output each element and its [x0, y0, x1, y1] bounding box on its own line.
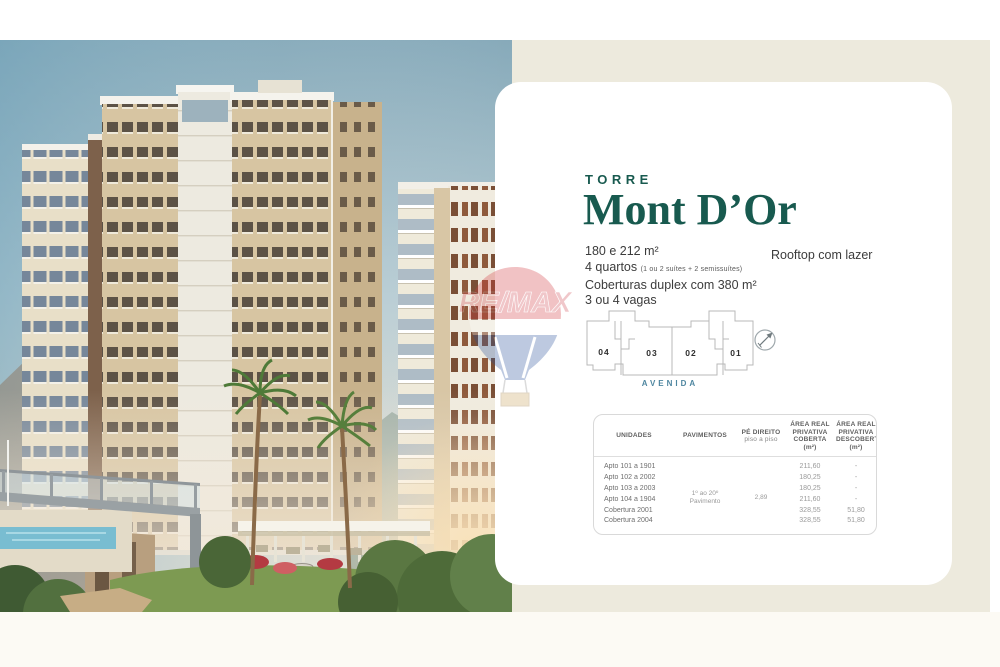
- rooftop-note: Rooftop com lazer: [771, 248, 872, 262]
- tower-title: Mont D’Or: [583, 186, 797, 234]
- building-rendering-illustration: [0, 40, 512, 612]
- col-area-coberta: ÁREA REAL PRIVATIVA COBERTA (m²): [786, 415, 834, 457]
- unit-label: 02: [685, 348, 696, 358]
- spec-area: 180 e 212 m²: [585, 244, 757, 260]
- unit-label: 04: [598, 347, 609, 357]
- compass-icon: [752, 327, 778, 353]
- table-header-row: UNIDADES PAVIMENTOS PÉ DIREITO piso a pi…: [594, 415, 877, 457]
- street-label: AVENIDA: [585, 379, 755, 388]
- info-card: TORRE Mont D’Or 180 e 212 m² 4 quartos (…: [495, 82, 952, 585]
- unit-label: 03: [646, 348, 657, 358]
- floorplan-diagram: 04 03 02 01: [585, 306, 755, 380]
- merged-pavimentos: 1º ao 20º Pavimento: [674, 457, 736, 534]
- bottom-band: [0, 612, 1000, 667]
- spec-rooms-note: (1 ou 2 suítes + 2 semissuítes): [641, 266, 743, 273]
- unit-label: 01: [730, 348, 741, 358]
- col-pe-direito: PÉ DIREITO piso a piso: [736, 415, 786, 457]
- units-table: UNIDADES PAVIMENTOS PÉ DIREITO piso a pi…: [593, 414, 877, 535]
- merged-pe-direito: 2,89: [736, 457, 786, 534]
- col-unidades: UNIDADES: [594, 415, 674, 457]
- slide: TORRE Mont D’Or 180 e 212 m² 4 quartos (…: [0, 0, 1000, 667]
- building-rendering: [0, 40, 512, 612]
- spec-penthouse: Coberturas duplex com 380 m²: [585, 278, 757, 294]
- spec-rooms: 4 quartos (1 ou 2 suítes + 2 semissuítes…: [585, 260, 757, 278]
- table-row: Apto 101 a 1901 1º ao 20º Pavimento 2,89…: [594, 457, 877, 473]
- col-pavimentos: PAVIMENTOS: [674, 415, 736, 457]
- col-area-descoberta: ÁREA REAL PRIVATIVA DESCOBERTA (m²): [834, 415, 877, 457]
- spec-list: 180 e 212 m² 4 quartos (1 ou 2 suítes + …: [585, 244, 757, 309]
